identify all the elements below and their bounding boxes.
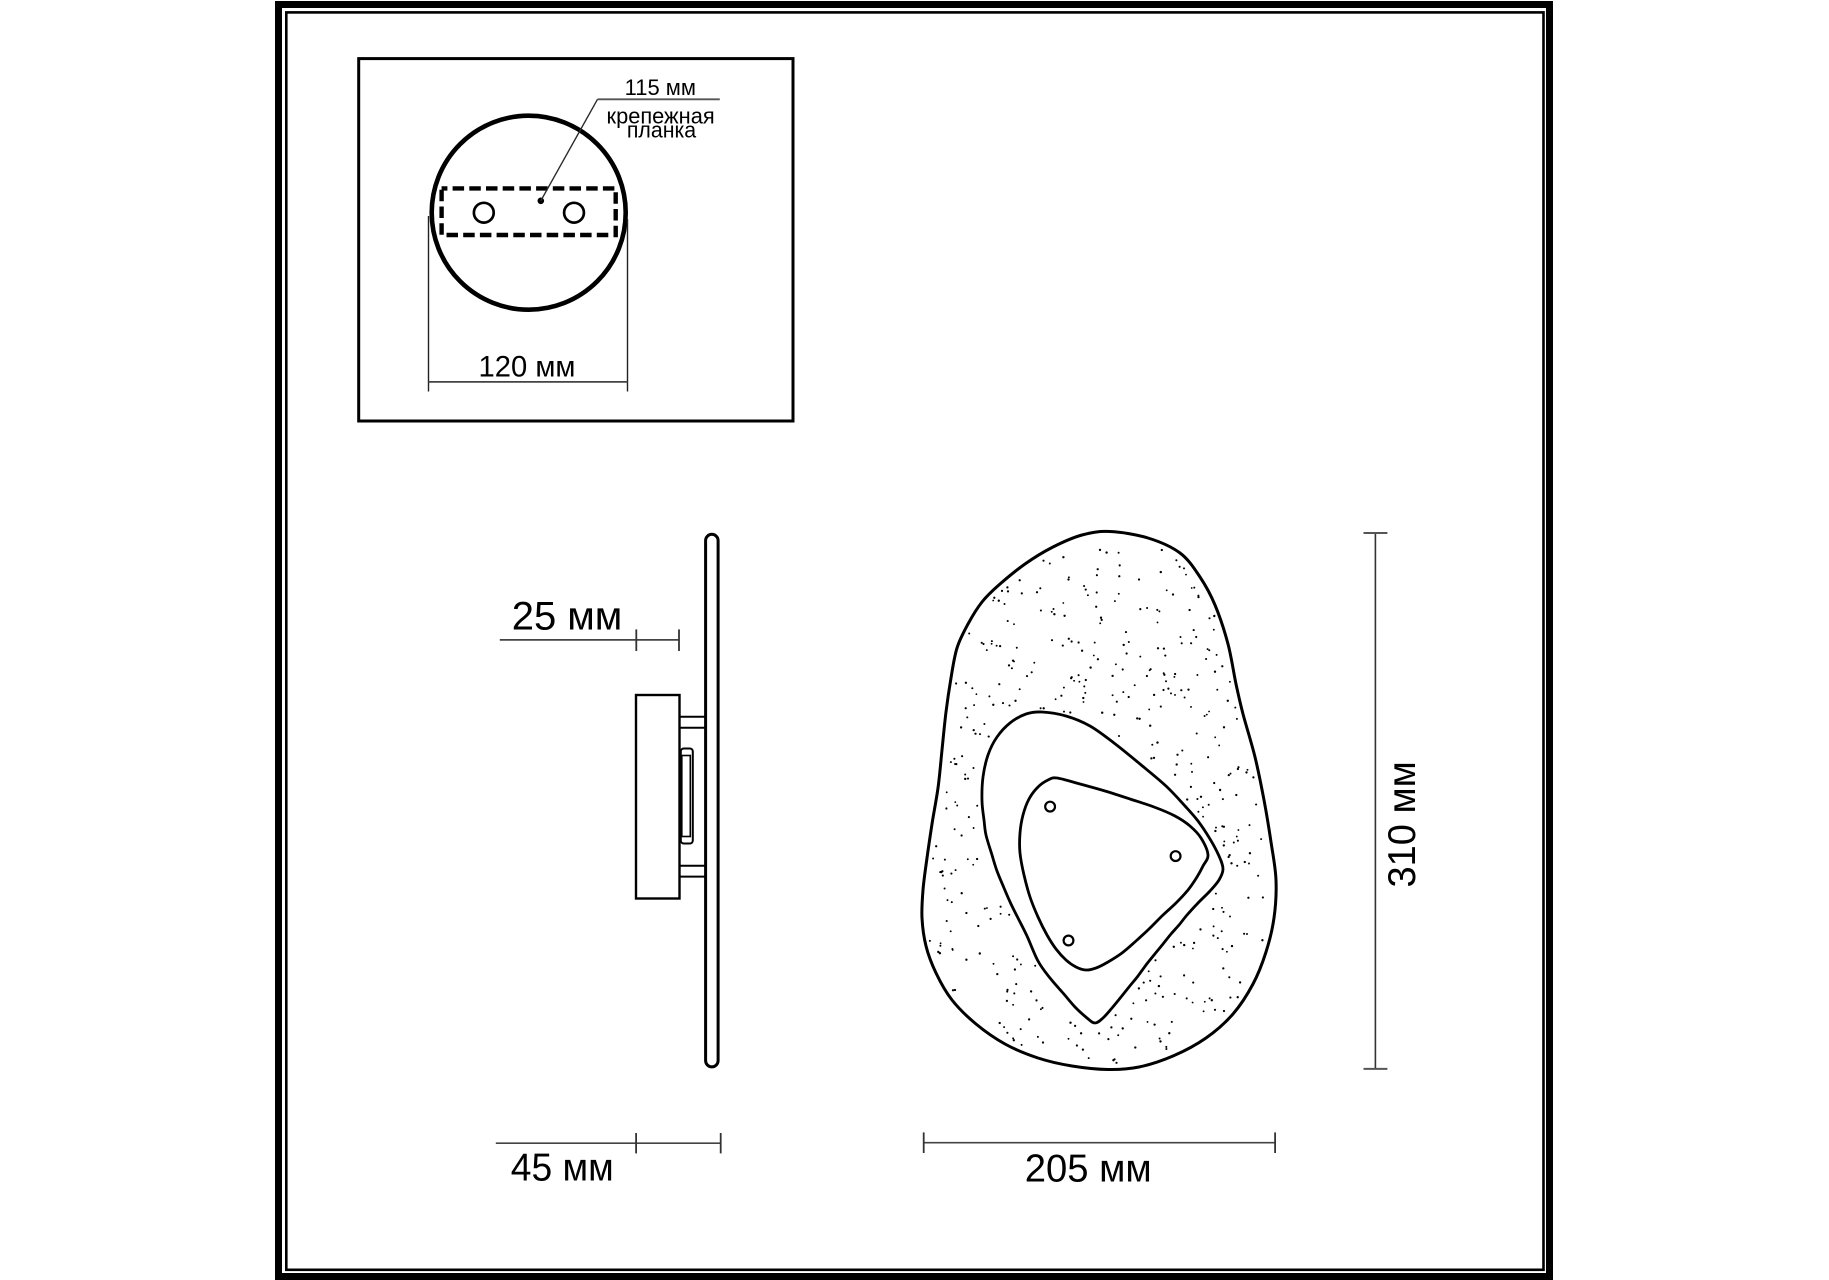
svg-text:310 мм: 310 мм [1381, 761, 1424, 887]
svg-text:120 мм: 120 мм [479, 350, 576, 383]
svg-text:планка: планка [627, 117, 697, 142]
svg-text:115 мм: 115 мм [625, 75, 696, 100]
svg-text:25 мм: 25 мм [512, 595, 623, 639]
svg-text:45 мм: 45 мм [511, 1147, 614, 1190]
svg-text:205 мм: 205 мм [1025, 1147, 1152, 1190]
